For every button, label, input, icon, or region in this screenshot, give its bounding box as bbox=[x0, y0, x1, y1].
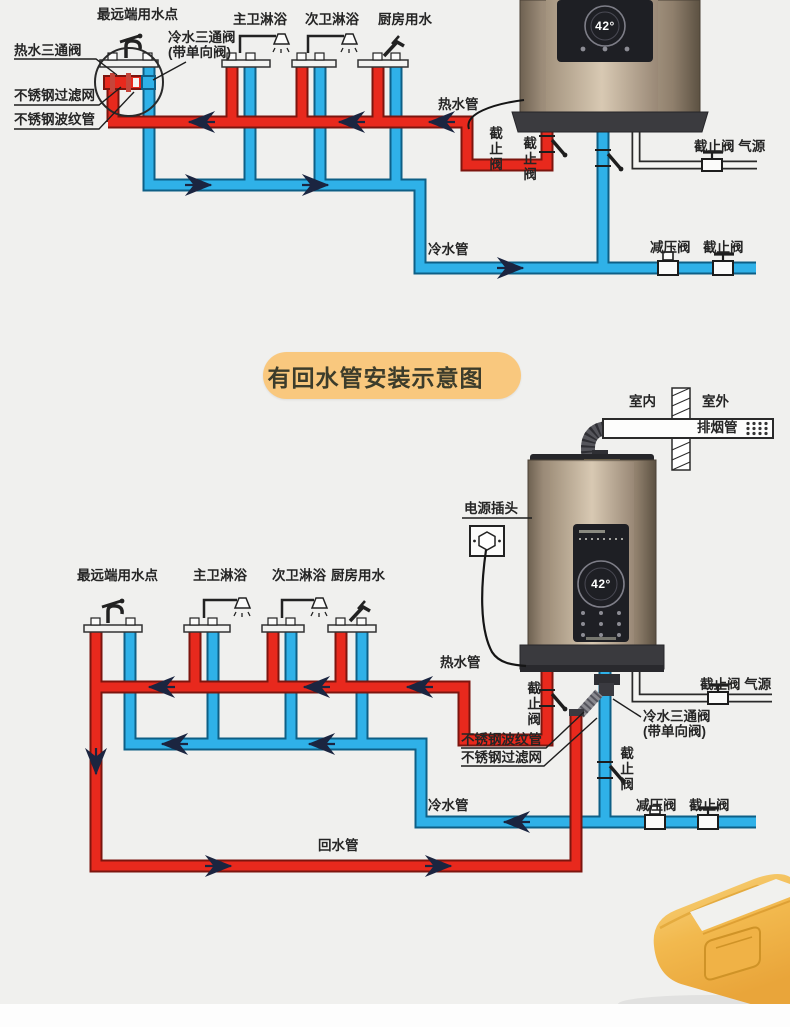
label-stop-valve-hot-2: 截止阀 bbox=[525, 681, 539, 728]
label-cold-three-way-valve: 冷水三通阀 bbox=[168, 31, 236, 45]
yellow-toolbox bbox=[618, 874, 790, 1013]
heater2-temperature: 42° bbox=[579, 577, 623, 591]
label-stop-valve-gas-2: 截止阀 气源 bbox=[700, 678, 771, 692]
label-flue-pipe: 排烟管 bbox=[697, 421, 738, 435]
label-stop-valve-cold-2: 截止阀 bbox=[618, 746, 632, 793]
power-outlet bbox=[470, 526, 526, 666]
stop-valve-gas-text: 截止阀 bbox=[694, 139, 735, 154]
label-indoor: 室内 bbox=[629, 395, 656, 409]
label-pressure-reducing-valve: 减压阀 bbox=[650, 241, 691, 255]
label-stop-valve-gas: 截止阀 气源 bbox=[694, 140, 765, 154]
label-cold-three-way-note: (带单向阀) bbox=[168, 46, 231, 60]
label-master-shower: 主卫淋浴 bbox=[233, 13, 287, 27]
page-bottom-margin bbox=[0, 1004, 790, 1027]
label-hot-pipe: 热水管 bbox=[438, 98, 479, 112]
label-power-plug: 电源插头 bbox=[464, 502, 518, 516]
label-second-shower: 次卫淋浴 bbox=[305, 13, 359, 27]
gas-source-text: 气源 bbox=[738, 139, 765, 154]
label-second-shower-2: 次卫淋浴 bbox=[272, 569, 326, 583]
label-hot-pipe-2: 热水管 bbox=[440, 656, 481, 670]
installation-infographic: 最远端用水点 热水三通阀 冷水三通阀 (带单向阀) 不锈钢过滤网 不锈钢波纹管 … bbox=[0, 0, 790, 1027]
heater1-temperature: 42° bbox=[583, 19, 627, 33]
label-stop-valve-hot: 截止阀 bbox=[487, 126, 501, 173]
label-cold-pipe: 冷水管 bbox=[428, 243, 469, 257]
section-badge: 有回水管安装示意图 bbox=[263, 352, 521, 399]
label-master-shower-2: 主卫淋浴 bbox=[193, 569, 247, 583]
label-stop-valve-cold-main: 截止阀 bbox=[703, 241, 744, 255]
stop-valve-gas-text-2: 截止阀 bbox=[700, 677, 741, 692]
label-stop-valve-cold-main-2: 截止阀 bbox=[689, 799, 730, 813]
label-cold-three-way-note-2: (带单向阀) bbox=[643, 725, 706, 739]
label-kitchen-water: 厨房用水 bbox=[378, 13, 432, 27]
label-return-pipe: 回水管 bbox=[318, 839, 359, 853]
label-farthest-outlet-2: 最远端用水点 bbox=[77, 569, 158, 583]
label-cold-pipe-2: 冷水管 bbox=[428, 799, 469, 813]
gas-source-text-2: 气源 bbox=[744, 677, 771, 692]
label-pressure-reducing-valve-2: 减压阀 bbox=[636, 799, 677, 813]
label-stainless-bellows: 不锈钢波纹管 bbox=[14, 113, 95, 127]
label-cold-three-way-valve-2: 冷水三通阀 bbox=[643, 710, 711, 724]
label-farthest-outlet: 最远端用水点 bbox=[97, 8, 178, 22]
label-stainless-filter: 不锈钢过滤网 bbox=[14, 89, 95, 103]
label-stop-valve-cold: 截止阀 bbox=[521, 136, 535, 183]
label-outdoor: 室外 bbox=[702, 395, 729, 409]
label-stainless-filter-2: 不锈钢过滤网 bbox=[461, 751, 542, 765]
label-kitchen-water-2: 厨房用水 bbox=[331, 569, 385, 583]
diagram1-hot-pipes bbox=[108, 64, 547, 165]
diagram-canvas bbox=[0, 0, 790, 1027]
diagram2-fixtures bbox=[84, 598, 376, 632]
label-hot-three-way-valve: 热水三通阀 bbox=[14, 44, 82, 58]
section-badge-title: 有回水管安装示意图 bbox=[268, 359, 484, 393]
label-stainless-bellows-2: 不锈钢波纹管 bbox=[461, 733, 542, 747]
diagram2-water-heater bbox=[520, 454, 664, 672]
